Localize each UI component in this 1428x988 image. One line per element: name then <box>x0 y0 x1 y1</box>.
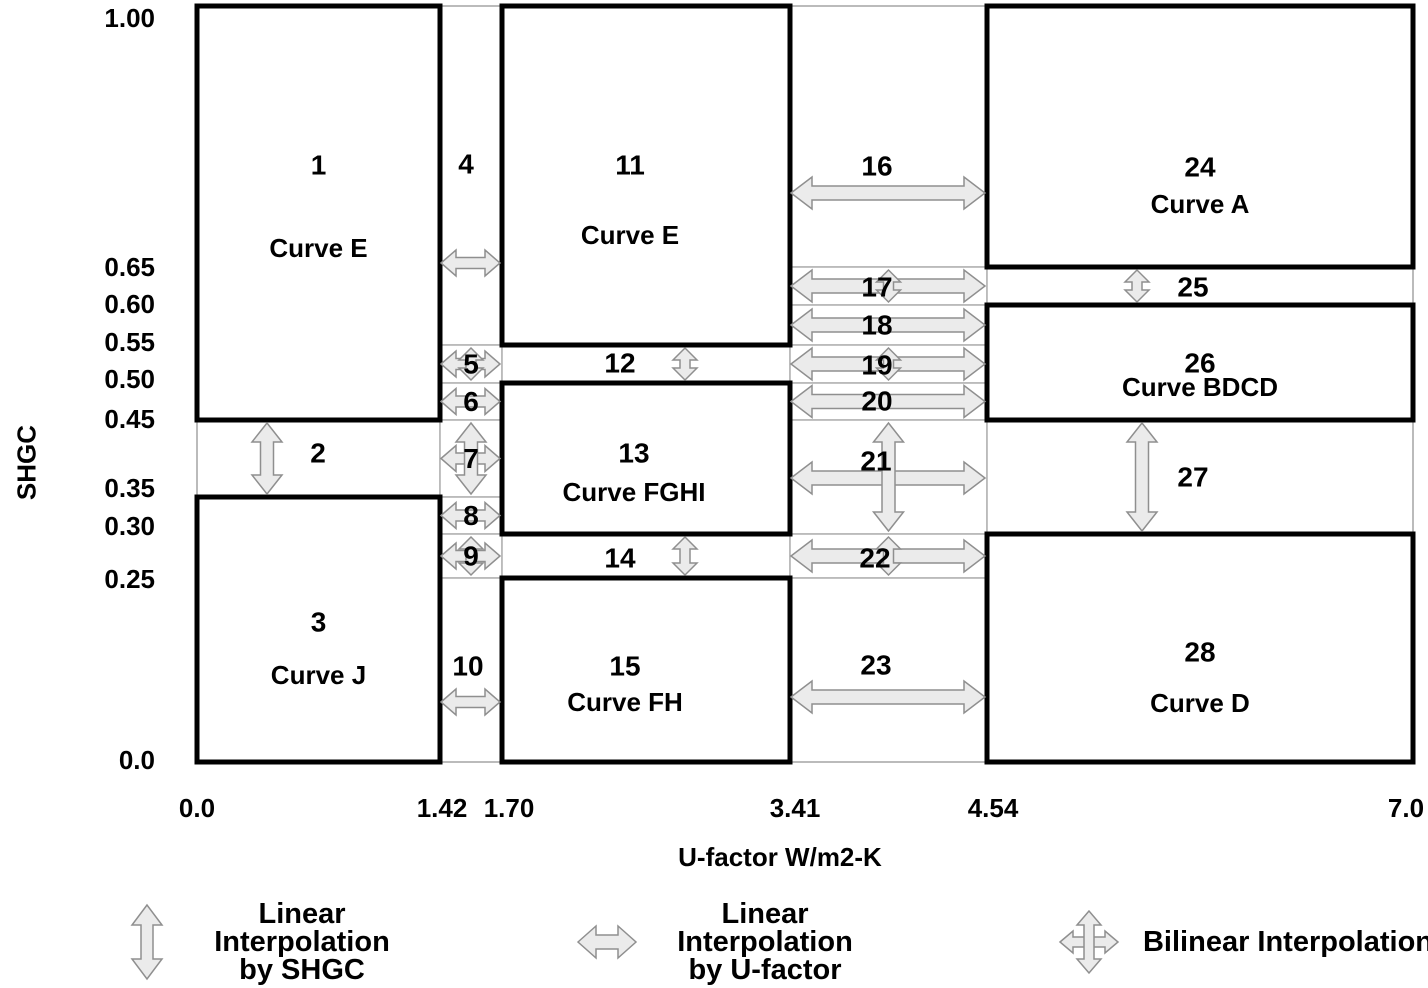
region-label-28: 28 <box>1184 637 1215 668</box>
region-box-11 <box>502 6 790 345</box>
y-tick-label-0.50: 0.50 <box>104 364 155 394</box>
region-label-22: 22 <box>859 543 890 574</box>
x-tick-label-3.41: 3.41 <box>770 793 821 823</box>
region-label-13: 13 <box>618 438 649 469</box>
region-label-18: 18 <box>861 310 892 341</box>
legend-label-line: by SHGC <box>170 956 434 984</box>
y-tick-label-0.65: 0.65 <box>104 252 155 282</box>
region-label-25: 25 <box>1177 272 1208 303</box>
legend-label-line: Bilinear Interpolation <box>1128 928 1428 956</box>
region-zone-14 <box>502 534 790 578</box>
region-label-11: 11 <box>615 150 645 181</box>
interpolation-diagram: 1Curve E23Curve J4567891011Curve E1213Cu… <box>0 0 1428 988</box>
legend-label-line: Linear Interpolation <box>645 900 885 956</box>
y-tick-label-0.35: 0.35 <box>104 473 155 503</box>
region-label-3: 3 <box>311 607 327 638</box>
region-label-6: 6 <box>463 386 479 417</box>
region-label-12: 12 <box>604 348 635 379</box>
region-label-1: 1 <box>311 150 327 181</box>
legend-label-linear-ufactor: Linear Interpolation by U-factor <box>645 900 885 984</box>
y-axis-title: SHGC <box>12 408 43 518</box>
curve-label-24: Curve A <box>1151 189 1250 219</box>
region-label-17: 17 <box>861 272 892 303</box>
region-label-7: 7 <box>463 443 479 474</box>
legend-label-linear-shgc: Linear Interpolation by SHGC <box>170 900 434 984</box>
curve-label-28: Curve D <box>1150 688 1250 718</box>
y-tick-label-0.45: 0.45 <box>104 404 155 434</box>
curve-label-1: Curve E <box>269 233 367 263</box>
region-label-21: 21 <box>860 446 891 477</box>
legend-item-linear-shgc: Linear Interpolation by SHGC <box>130 902 434 982</box>
horizontal-double-arrow-icon <box>575 922 639 962</box>
region-box-1 <box>197 6 440 420</box>
legend-label-line: Linear Interpolation <box>170 900 434 956</box>
y-tick-label-0.55: 0.55 <box>104 327 155 357</box>
region-label-10: 10 <box>452 651 483 682</box>
region-label-23: 23 <box>860 650 891 681</box>
region-label-2: 2 <box>310 438 326 469</box>
x-tick-label-4.54: 4.54 <box>968 793 1019 823</box>
y-tick-label-1.00: 1.00 <box>104 3 155 33</box>
x-tick-label-1.70: 1.70 <box>484 793 535 823</box>
x-tick-label-0.0: 0.0 <box>179 793 215 823</box>
y-tick-label-0.25: 0.25 <box>104 564 155 594</box>
region-box-24 <box>987 6 1413 267</box>
curve-label-11: Curve E <box>581 220 679 250</box>
four-way-arrow-icon <box>1058 909 1120 975</box>
x-tick-label-7.0: 7.0 <box>1388 793 1424 823</box>
x-tick-label-1.42: 1.42 <box>417 793 468 823</box>
curve-label-3: Curve J <box>271 660 366 690</box>
y-tick-label-0.60: 0.60 <box>104 289 155 319</box>
region-box-15 <box>502 578 790 762</box>
x-axis-title: U-factor W/m2-K <box>170 842 1390 873</box>
region-label-24: 24 <box>1184 152 1216 183</box>
figure-canvas: 1Curve E23Curve J4567891011Curve E1213Cu… <box>0 0 1428 988</box>
region-zone-16 <box>790 6 987 267</box>
vertical-double-arrow-icon <box>130 902 164 982</box>
region-label-15: 15 <box>609 651 640 682</box>
y-tick-label-0.30: 0.30 <box>104 511 155 541</box>
region-label-16: 16 <box>861 151 892 182</box>
region-label-8: 8 <box>463 500 479 531</box>
region-label-4: 4 <box>458 149 474 180</box>
region-label-9: 9 <box>463 541 479 572</box>
y-tick-label-0.0: 0.0 <box>119 745 155 775</box>
legend-label-bilinear: Bilinear Interpolation <box>1128 928 1428 956</box>
region-zone-12 <box>502 345 790 383</box>
legend-item-linear-ufactor: Linear Interpolation by U-factor <box>575 902 885 982</box>
region-label-27: 27 <box>1177 462 1208 493</box>
region-label-5: 5 <box>463 349 479 380</box>
region-label-20: 20 <box>861 386 892 417</box>
curve-label-13: Curve FGHI <box>562 477 705 507</box>
region-label-14: 14 <box>604 543 636 574</box>
curve-label-26: Curve BDCD <box>1122 372 1278 402</box>
legend-item-bilinear: Bilinear Interpolation <box>1058 902 1428 982</box>
curve-label-15: Curve FH <box>567 687 683 717</box>
legend-label-line: by U-factor <box>645 956 885 984</box>
region-label-19: 19 <box>861 350 892 381</box>
